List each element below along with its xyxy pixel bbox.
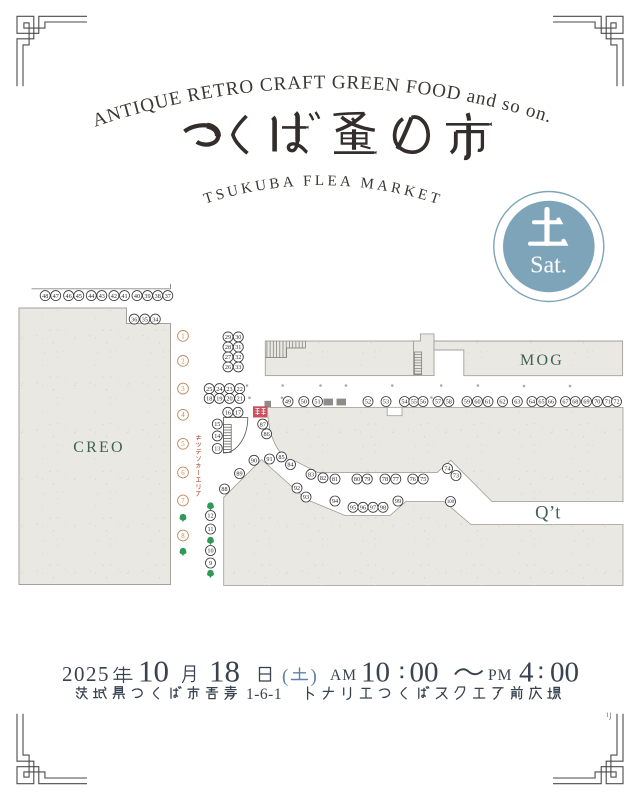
svg-text:28: 28 xyxy=(225,344,231,351)
svg-text:32: 32 xyxy=(235,354,241,361)
svg-text:1: 1 xyxy=(181,333,184,340)
svg-text:12: 12 xyxy=(207,513,213,520)
svg-text:82: 82 xyxy=(320,475,326,482)
svg-text:55: 55 xyxy=(411,399,417,406)
svg-text:90: 90 xyxy=(251,458,257,465)
svg-text:15: 15 xyxy=(214,421,220,428)
svg-text:57: 57 xyxy=(435,399,441,406)
svg-text:18: 18 xyxy=(209,654,240,689)
svg-text:Sat.: Sat. xyxy=(530,253,567,279)
svg-text:36: 36 xyxy=(131,316,137,323)
svg-text:67: 67 xyxy=(562,399,568,406)
svg-text:18: 18 xyxy=(206,396,212,403)
svg-text:4: 4 xyxy=(181,412,185,419)
svg-text:23: 23 xyxy=(226,386,232,393)
svg-text:): ) xyxy=(311,666,317,687)
svg-text:31: 31 xyxy=(235,344,241,351)
svg-text:42: 42 xyxy=(111,293,117,300)
svg-text:51: 51 xyxy=(314,399,320,406)
svg-text:76: 76 xyxy=(410,476,416,483)
svg-text:AM: AM xyxy=(330,667,357,684)
svg-text:63: 63 xyxy=(514,399,520,406)
svg-text:(: ( xyxy=(282,666,288,687)
svg-text:34: 34 xyxy=(152,316,158,323)
svg-text:92: 92 xyxy=(294,485,300,492)
svg-text:79: 79 xyxy=(364,476,370,483)
svg-text:68: 68 xyxy=(572,399,578,406)
svg-text:83: 83 xyxy=(308,472,314,479)
svg-text:1-6-1: 1-6-1 xyxy=(246,686,282,703)
svg-text:25: 25 xyxy=(206,386,212,393)
svg-text:100: 100 xyxy=(447,500,455,505)
svg-text:22: 22 xyxy=(237,386,243,393)
svg-text:70: 70 xyxy=(594,399,600,406)
svg-text:91: 91 xyxy=(266,456,272,463)
svg-text:38: 38 xyxy=(155,293,161,300)
svg-text:27: 27 xyxy=(225,354,231,361)
svg-text:85: 85 xyxy=(278,454,284,461)
svg-text:7: 7 xyxy=(181,498,185,505)
svg-text:46: 46 xyxy=(66,293,72,300)
svg-text:45: 45 xyxy=(76,293,82,300)
svg-text:2025: 2025 xyxy=(62,662,110,686)
svg-text:10: 10 xyxy=(207,548,213,555)
svg-text:54: 54 xyxy=(401,399,407,406)
svg-text:00: 00 xyxy=(410,657,439,689)
svg-text:49: 49 xyxy=(285,399,291,406)
svg-text:35: 35 xyxy=(142,316,148,323)
svg-text:73: 73 xyxy=(453,473,459,480)
svg-text:33: 33 xyxy=(235,364,241,371)
svg-text:87: 87 xyxy=(260,421,266,428)
svg-text:95: 95 xyxy=(350,505,356,512)
svg-text:69: 69 xyxy=(583,399,589,406)
svg-text:71: 71 xyxy=(605,399,611,406)
svg-text:8: 8 xyxy=(181,533,185,540)
svg-text:75: 75 xyxy=(420,476,426,483)
svg-text:40: 40 xyxy=(134,293,140,300)
svg-text:74: 74 xyxy=(444,466,450,473)
svg-text:10: 10 xyxy=(138,654,169,689)
svg-text:14: 14 xyxy=(214,433,220,440)
svg-text:11: 11 xyxy=(208,526,214,533)
svg-text:19: 19 xyxy=(216,396,222,403)
svg-text:9: 9 xyxy=(209,560,212,567)
svg-text:41: 41 xyxy=(121,293,127,300)
svg-text:3: 3 xyxy=(181,386,185,393)
svg-text:2: 2 xyxy=(181,358,185,365)
svg-text:30: 30 xyxy=(235,334,241,341)
svg-text:96: 96 xyxy=(360,505,366,512)
svg-text:48: 48 xyxy=(42,293,48,300)
svg-text:94: 94 xyxy=(332,498,338,505)
svg-text:50: 50 xyxy=(301,399,307,406)
svg-text:17: 17 xyxy=(235,410,241,417)
svg-text:64: 64 xyxy=(529,399,535,406)
svg-text:98: 98 xyxy=(380,505,386,512)
svg-text:6: 6 xyxy=(181,470,185,477)
svg-text:44: 44 xyxy=(88,293,94,300)
svg-text:10: 10 xyxy=(361,657,390,689)
svg-text:97: 97 xyxy=(370,505,376,512)
svg-text:88: 88 xyxy=(221,486,227,493)
svg-text:61: 61 xyxy=(485,399,491,406)
svg-text:PM: PM xyxy=(488,667,512,684)
svg-text:80: 80 xyxy=(354,476,360,483)
svg-text:24: 24 xyxy=(216,386,222,393)
svg-text:89: 89 xyxy=(236,471,242,478)
svg-text:93: 93 xyxy=(303,494,309,501)
svg-text:16: 16 xyxy=(225,410,231,417)
svg-text:58: 58 xyxy=(446,399,452,406)
svg-text:53: 53 xyxy=(383,399,389,406)
svg-text:00: 00 xyxy=(550,657,579,689)
svg-text:Q’t: Q’t xyxy=(535,504,561,524)
svg-text:43: 43 xyxy=(99,293,105,300)
svg-text:39: 39 xyxy=(144,293,150,300)
svg-text:4: 4 xyxy=(519,657,534,689)
svg-text:52: 52 xyxy=(365,399,371,406)
svg-text:84: 84 xyxy=(287,462,293,469)
svg-text:60: 60 xyxy=(474,399,480,406)
svg-text:65: 65 xyxy=(538,399,544,406)
svg-text:56: 56 xyxy=(420,399,426,406)
svg-text:13: 13 xyxy=(214,446,220,453)
svg-text:21: 21 xyxy=(237,396,243,403)
svg-text:26: 26 xyxy=(225,364,231,371)
svg-text:81: 81 xyxy=(332,476,338,483)
svg-text:62: 62 xyxy=(499,399,505,406)
svg-text:59: 59 xyxy=(464,399,470,406)
svg-text:72: 72 xyxy=(613,399,619,406)
svg-text:29: 29 xyxy=(225,334,231,341)
svg-text:78: 78 xyxy=(382,476,388,483)
svg-text:86: 86 xyxy=(264,431,270,438)
svg-text:77: 77 xyxy=(393,476,399,483)
svg-text:47: 47 xyxy=(53,293,59,300)
svg-text:37: 37 xyxy=(165,293,171,300)
svg-text:CREO: CREO xyxy=(73,439,124,456)
svg-text:20: 20 xyxy=(226,396,232,403)
svg-text:MOG: MOG xyxy=(520,352,564,369)
svg-text:5: 5 xyxy=(181,441,185,448)
svg-text:99: 99 xyxy=(395,498,401,505)
svg-text:66: 66 xyxy=(548,399,554,406)
